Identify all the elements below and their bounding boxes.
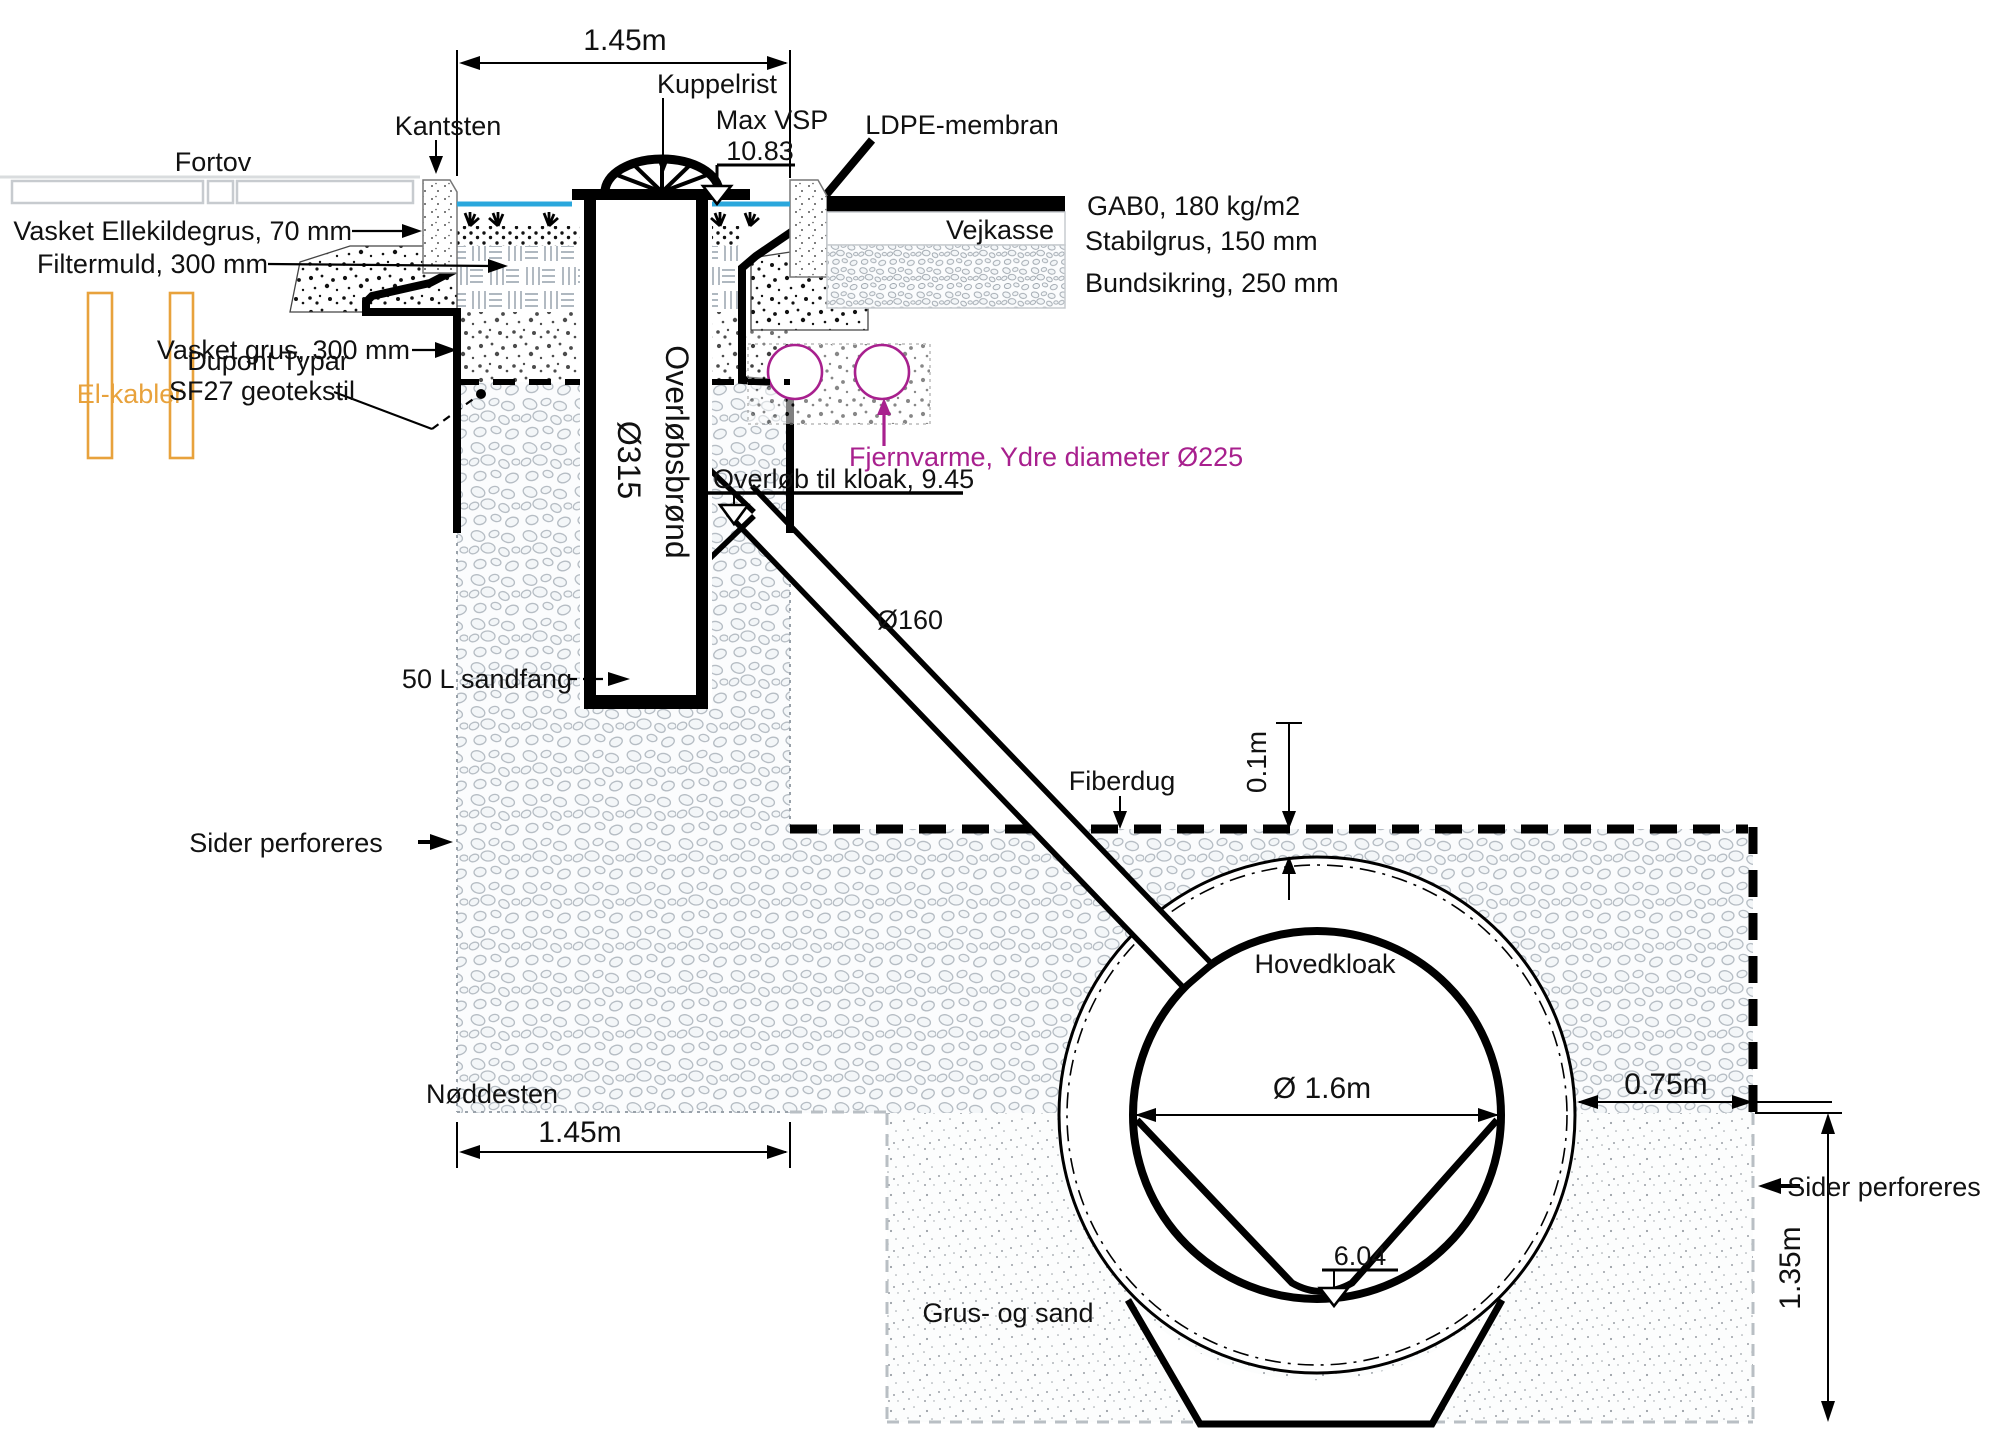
- el-cables-label: El-kabler: [77, 379, 184, 409]
- technical-drawing-canvas: 1.45m Kuppelrist Max VSP 10.83 LDPE-memb…: [0, 0, 2008, 1440]
- bundsikring-layer: [827, 245, 1065, 308]
- asphalt-label: GAB0, 180 kg/m2: [1087, 191, 1300, 221]
- asphalt-layer: [827, 196, 1065, 212]
- dim-trench-width-bottom: 1.45m: [538, 1116, 621, 1149]
- geotextile-label-1: Dupont Typar: [187, 346, 349, 376]
- grate-label: Kuppelrist: [657, 69, 778, 99]
- stabilgrus-label: Stabilgrus, 150 mm: [1085, 226, 1318, 256]
- sidewalk-label: Fortov: [175, 147, 252, 177]
- cross-section-diagram: 1.45m Kuppelrist Max VSP 10.83 LDPE-memb…: [0, 0, 2008, 1440]
- sand-bed-label: Grus- og sand: [922, 1298, 1093, 1328]
- sidewalk: [0, 177, 420, 203]
- max-vsp-value: 10.83: [726, 136, 794, 166]
- dim-sewer-diameter: Ø 1.6m: [1273, 1072, 1371, 1105]
- well-bottom: [584, 695, 708, 709]
- heating-pipe-left: [768, 345, 822, 399]
- left-liner-line: [366, 270, 457, 533]
- left-curbstone: [423, 180, 457, 273]
- well-name-label: Overløbsbrønd: [659, 345, 695, 558]
- dim-trench-width-top: 1.45m: [583, 24, 666, 57]
- perforation-left-label: Sider perforeres: [189, 828, 383, 858]
- dim-depth-below: 1.35m: [1774, 1226, 1807, 1309]
- road-structure: [827, 196, 1065, 308]
- curb-label: Kantsten: [395, 111, 502, 141]
- max-vsp-label: Max VSP: [716, 105, 829, 135]
- main-sewer-label: Hovedkloak: [1254, 949, 1396, 979]
- perforation-right-label: Sider perforeres: [1787, 1172, 1981, 1202]
- bundsikring-label: Bundsikring, 250 mm: [1085, 268, 1339, 298]
- well-diameter-label: Ø315: [611, 421, 647, 499]
- geotextile-label-2: SF27 geotekstil: [169, 376, 355, 406]
- right-curbstone: [790, 180, 827, 277]
- dim-side-clearance: 0.75m: [1624, 1068, 1707, 1101]
- heating-pipe-right: [855, 345, 909, 399]
- membrane-label: LDPE-membran: [865, 110, 1059, 140]
- fabric-label: Fiberdug: [1069, 766, 1176, 796]
- filtermuld-label: Filtermuld, 300 mm: [37, 249, 268, 279]
- road-box-label: Vejkasse: [946, 215, 1054, 245]
- sand-trap-label: 50 L sandfang: [402, 664, 572, 694]
- dim-cover-gap: 0.1m: [1241, 731, 1272, 793]
- ellekildegrus-label: Vasket Ellekildegrus, 70 mm: [13, 216, 352, 246]
- overflow-invert-label: Overløb til kloak, 9.45: [713, 464, 974, 494]
- pipe-diameter-label: Ø160: [877, 605, 943, 635]
- stone-fill-label: Nøddesten: [426, 1079, 558, 1109]
- sewer-invert-value: 6.04: [1334, 1241, 1387, 1271]
